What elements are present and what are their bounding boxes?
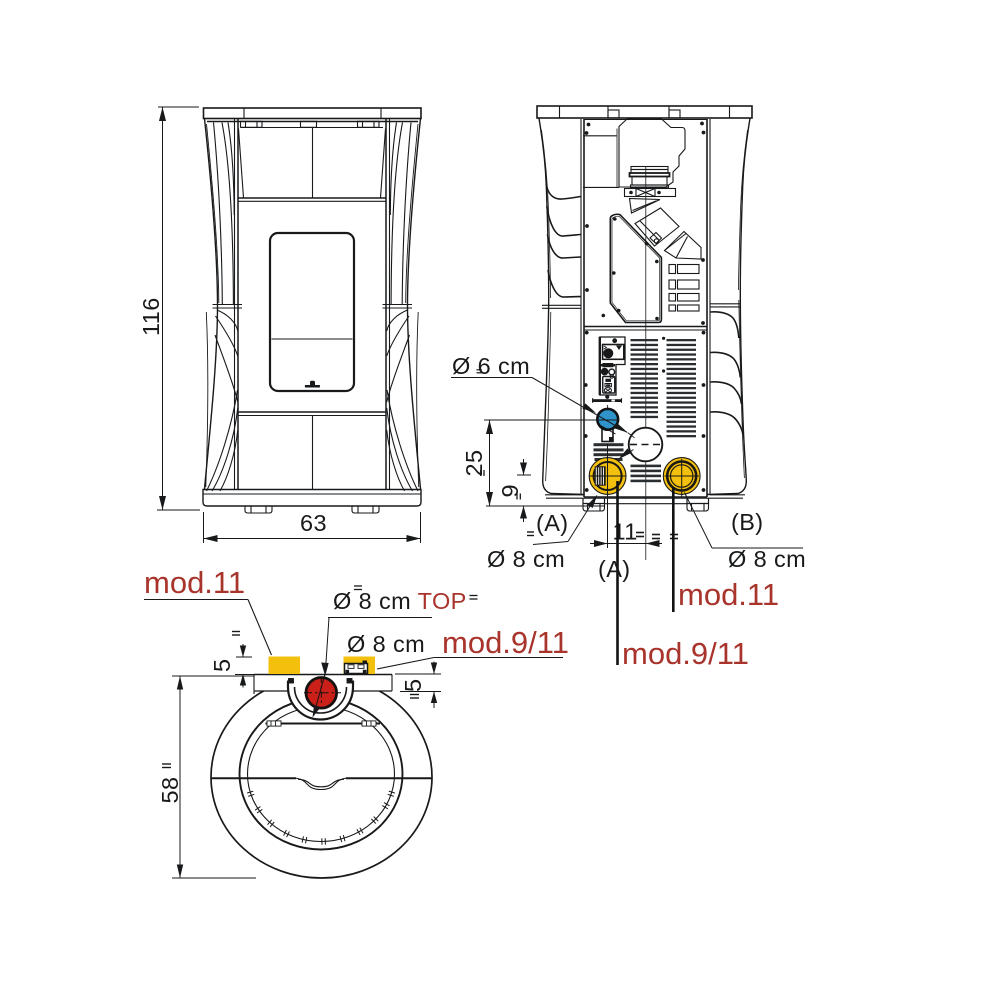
svg-text:25: 25 <box>461 450 487 477</box>
svg-text:5: 5 <box>400 679 426 692</box>
svg-text:mod.11: mod.11 <box>678 577 779 612</box>
svg-text:Ø 6 cm: Ø 6 cm <box>452 353 530 379</box>
svg-text:58: 58 <box>157 777 183 804</box>
svg-text:mod.9/11: mod.9/11 <box>442 625 569 660</box>
svg-text:(A): (A) <box>598 556 631 582</box>
svg-text:9: 9 <box>497 484 523 497</box>
svg-text:Ø 8 cm: Ø 8 cm <box>728 546 806 572</box>
svg-text:5: 5 <box>209 659 235 672</box>
svg-text:63: 63 <box>300 510 327 536</box>
svg-text:mod.11: mod.11 <box>144 565 245 600</box>
svg-text:(A): (A) <box>536 510 569 536</box>
svg-text:Ø 8 cm: Ø 8 cm <box>347 631 425 657</box>
svg-text:(B): (B) <box>731 509 764 535</box>
svg-text:116: 116 <box>138 297 164 336</box>
svg-text:Ø 8 cm: Ø 8 cm <box>487 546 565 572</box>
svg-text:mod.9/11: mod.9/11 <box>622 636 749 671</box>
svg-text:Ø 8 cm TOP: Ø 8 cm TOP <box>333 588 467 614</box>
